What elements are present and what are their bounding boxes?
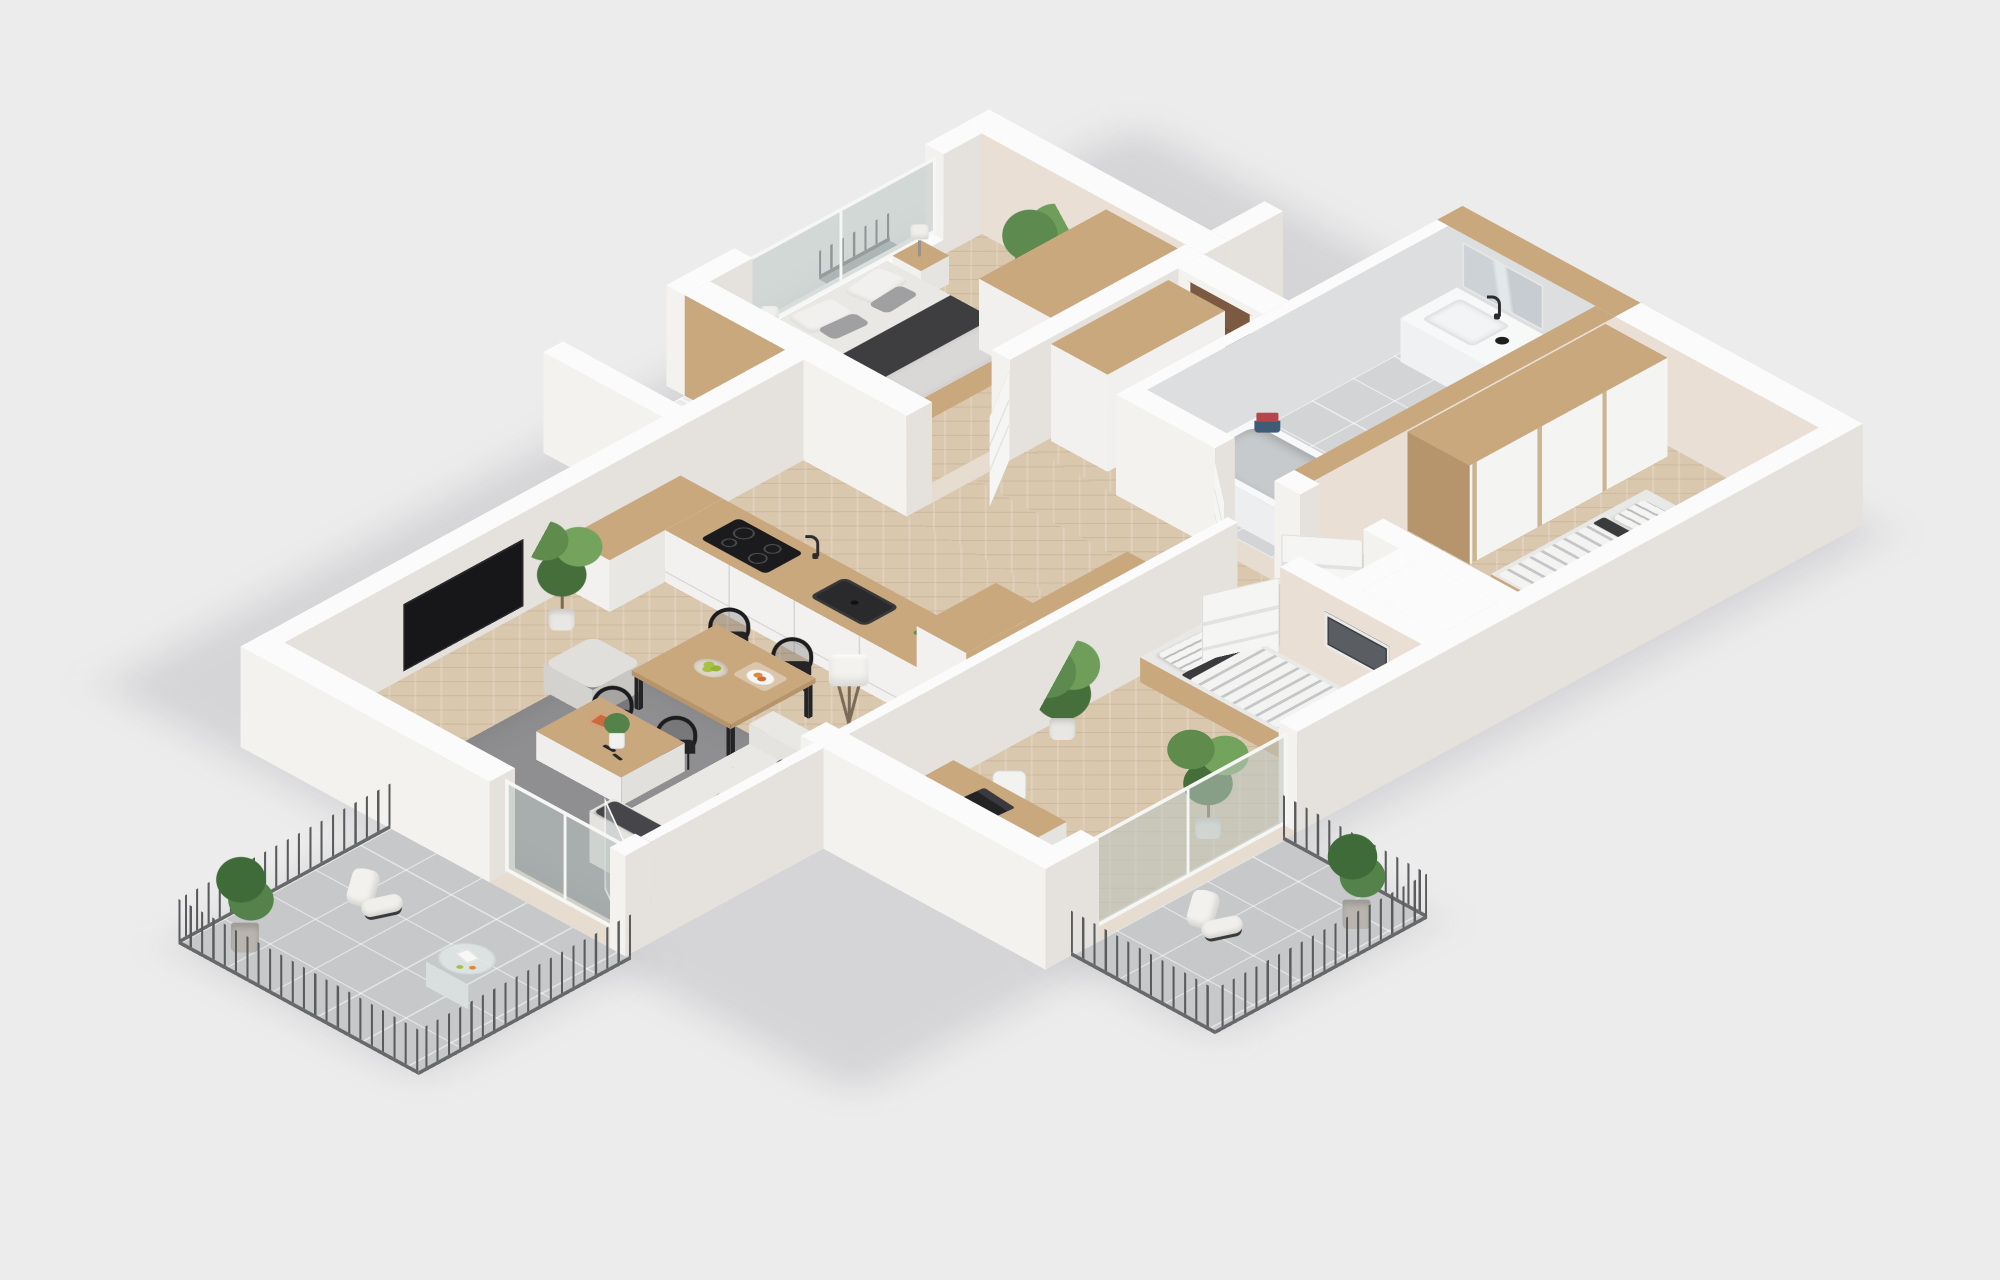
balcony-east-lounge-chair xyxy=(1183,890,1247,948)
table-leg-east xyxy=(808,683,812,719)
bedside-lamp xyxy=(909,224,929,256)
floor-plan-render xyxy=(0,0,2000,1280)
bedroom3-south-wall-east xyxy=(1045,855,1070,970)
drink xyxy=(468,965,478,970)
fruit-bowl xyxy=(687,655,735,681)
kitchen-faucet xyxy=(803,533,819,559)
remote xyxy=(612,753,623,760)
master-south-wall-w-south xyxy=(666,285,684,396)
balcony-lounge-chair xyxy=(343,869,407,927)
drink xyxy=(455,964,465,969)
bedroom2-north-wall-east xyxy=(1837,424,1862,539)
bedroom3-north-wall-e-east xyxy=(1440,643,1460,754)
magazine xyxy=(455,949,480,964)
coffee-table-plant xyxy=(602,713,632,749)
towels-on-tub xyxy=(1254,413,1280,433)
master-south-wall-e-east xyxy=(907,402,932,517)
bath-faucet xyxy=(1485,293,1501,319)
black-dish xyxy=(1492,335,1512,346)
